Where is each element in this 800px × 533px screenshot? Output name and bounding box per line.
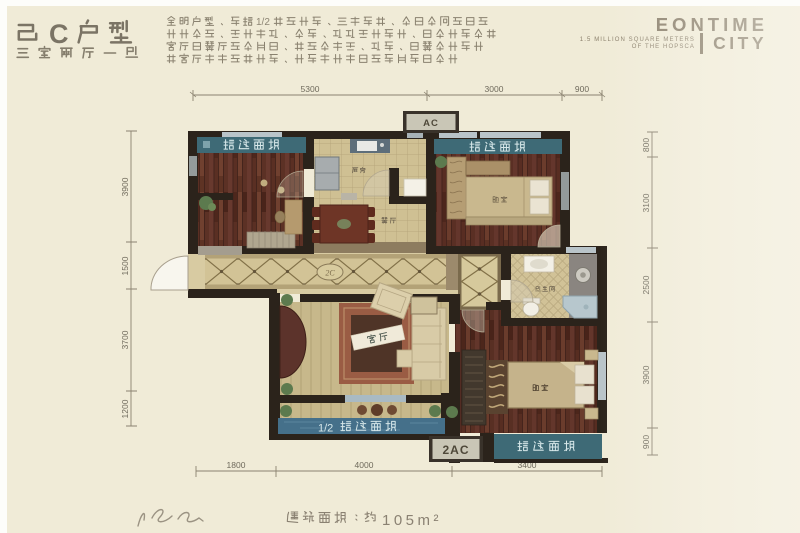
svg-text:3100: 3100 xyxy=(641,193,651,212)
svg-text:4000: 4000 xyxy=(355,460,374,470)
svg-text:2AC: 2AC xyxy=(442,443,469,457)
svg-text:105m²: 105m² xyxy=(382,512,442,529)
svg-text:1500: 1500 xyxy=(120,256,130,275)
svg-text:1800: 1800 xyxy=(227,460,246,470)
svg-text:800: 800 xyxy=(641,138,651,152)
svg-text:900: 900 xyxy=(575,84,589,94)
svg-text:2C: 2C xyxy=(325,269,335,278)
svg-text:1200: 1200 xyxy=(120,399,130,418)
svg-text:900: 900 xyxy=(641,435,651,449)
svg-text:C: C xyxy=(49,19,69,49)
svg-text:1.5 MILLION SQUARE METERS: 1.5 MILLION SQUARE METERS xyxy=(580,37,695,43)
svg-text:2500: 2500 xyxy=(641,275,651,294)
svg-text:CITY: CITY xyxy=(713,33,767,53)
svg-text:3900: 3900 xyxy=(120,177,130,196)
svg-text:AC: AC xyxy=(423,118,439,129)
svg-text:3000: 3000 xyxy=(485,84,504,94)
svg-text:1/2: 1/2 xyxy=(256,17,270,28)
svg-text:OF THE HOPSCA: OF THE HOPSCA xyxy=(632,44,695,50)
svg-text:3900: 3900 xyxy=(641,365,651,384)
svg-text:5300: 5300 xyxy=(301,84,320,94)
svg-text:EONTIME: EONTIME xyxy=(656,14,768,35)
svg-text:1/2: 1/2 xyxy=(318,423,333,435)
svg-text:3700: 3700 xyxy=(120,330,130,349)
